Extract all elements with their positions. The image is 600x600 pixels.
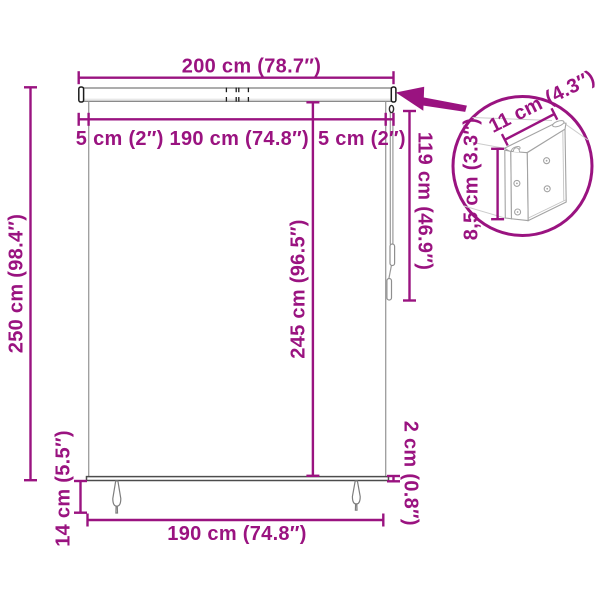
svg-text:190 cm (74.8″): 190 cm (74.8″) [167,523,306,545]
svg-text:5 cm (2″) 190 cm (74.8″): 5 cm (2″) 190 cm (74.8″) [76,128,309,150]
svg-text:14 cm (5.5″): 14 cm (5.5″) [52,430,74,547]
svg-text:5 cm (2″): 5 cm (2″) [318,128,406,150]
svg-text:245 cm (96.5″): 245 cm (96.5″) [288,219,310,358]
svg-text:8,5 cm (3.3″): 8,5 cm (3.3″) [461,118,483,240]
svg-text:200 cm (78.7″): 200 cm (78.7″) [182,56,321,78]
svg-text:250 cm (98.4″): 250 cm (98.4″) [6,214,28,353]
svg-text:2 cm (0.8″): 2 cm (0.8″) [400,421,422,526]
svg-text:119 cm (46.9″): 119 cm (46.9″) [414,132,436,270]
